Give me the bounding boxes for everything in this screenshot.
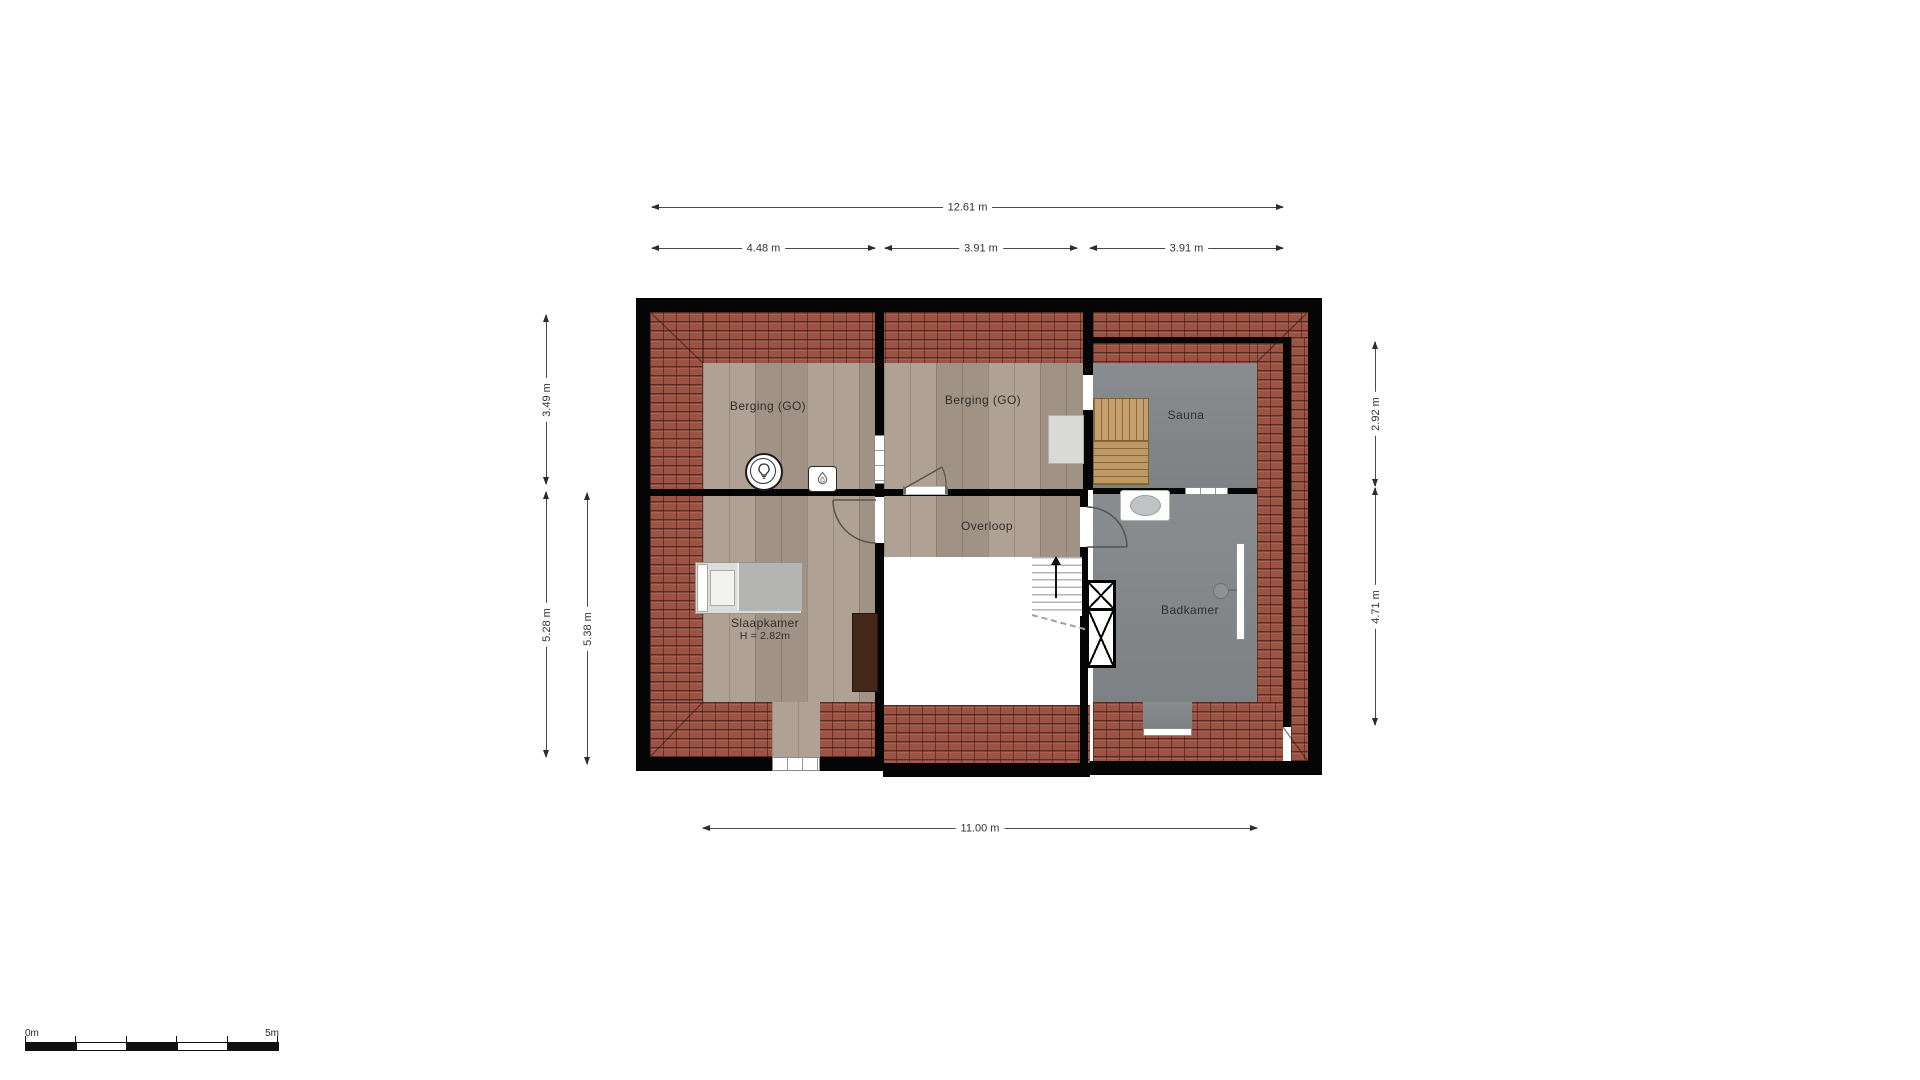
room-label-slaapkamer: Slaapkamer H = 2.82m	[731, 616, 799, 642]
dimension-left-bottom-inner: 5.38 m	[587, 493, 588, 764]
dimension-right-top: 2.92 m	[1375, 342, 1376, 486]
scale-start-label: 0m	[25, 1028, 39, 1039]
wall-outer-right	[1308, 298, 1322, 775]
floor-badkamer	[1093, 494, 1257, 702]
scale-segment	[76, 1043, 127, 1050]
dormer-window-badkamer	[1143, 728, 1192, 736]
duct-shaft-large	[1086, 608, 1116, 668]
wall-outer-bottom-left-b	[820, 757, 883, 771]
bed	[695, 562, 802, 614]
interior-window-bergingen	[874, 435, 885, 484]
dimension-right-bottom: 4.71 m	[1375, 488, 1376, 725]
room-label-overloop: Overloop	[961, 519, 1013, 533]
heater-box	[808, 466, 837, 492]
roof-tiles-top-band	[703, 312, 1083, 363]
roof-tiles-right-outer-band	[1291, 337, 1308, 761]
stair-treads	[1032, 557, 1082, 616]
roof-tiles-sauna-upper-strip	[1093, 343, 1257, 363]
room-label-badkamer: Badkamer	[1161, 603, 1219, 617]
stair-arrow-stem	[1055, 564, 1057, 598]
dimension-top-segment-1: 4.48 m	[652, 248, 875, 249]
cabinet	[1048, 415, 1084, 464]
sauna-bench-upper	[1093, 398, 1149, 442]
wall-sauna-bottom	[1093, 488, 1257, 494]
scale-bar: 0m 5m	[25, 1028, 279, 1054]
wall-outer-top	[636, 298, 1322, 312]
wall-sauna-top	[1093, 337, 1291, 343]
sauna-bench-lower	[1093, 440, 1149, 485]
mechanical-unit-icon	[745, 453, 783, 491]
dimension-left-bottom-outer: 5.28 m	[546, 492, 547, 757]
roof-tiles-right-inner-band	[1257, 343, 1283, 727]
duct-shaft-small	[1086, 580, 1116, 611]
scale-segment	[26, 1043, 76, 1050]
roof-tiles-left-band	[650, 312, 703, 757]
bed-pillow	[710, 570, 735, 606]
door-opening-badkamer	[1080, 507, 1088, 547]
wall-inner-right-vertical	[1283, 337, 1291, 727]
scale-segment	[177, 1043, 228, 1050]
flame-icon	[816, 471, 829, 487]
door-sill-overloop-berging	[903, 486, 948, 495]
roof-tiles-bottom-middle-band	[883, 705, 1090, 763]
dormer-window-slaapkamer	[772, 757, 820, 771]
room-label-berging-middle: Berging (GO)	[945, 393, 1021, 407]
wall-outer-bottom-middle	[883, 763, 1090, 777]
floor-badkamer-dormer	[1143, 702, 1192, 728]
room-label-berging-left: Berging (GO)	[730, 399, 806, 413]
scale-segment	[127, 1043, 177, 1050]
dimension-top-segment-3: 3.91 m	[1090, 248, 1283, 249]
bed-blanket	[737, 563, 802, 611]
room-height-note: H = 2.82m	[731, 630, 799, 642]
wall-outer-bottom-right	[1090, 761, 1322, 775]
dimension-bottom-width: 11.00 m	[703, 828, 1257, 829]
floor-plan-canvas: Berging (GO) Berging (GO) Sauna Overloop…	[0, 0, 1920, 1080]
room-label-sauna: Sauna	[1168, 408, 1205, 422]
floor-berging-left	[703, 363, 875, 489]
scale-segment	[228, 1043, 278, 1050]
door-opening-slaapkamer	[875, 497, 884, 543]
roof-tiles-bottom-left-band	[650, 702, 883, 757]
dresser	[852, 613, 878, 692]
bed-headboard	[697, 564, 708, 612]
door-opening-sauna	[1083, 375, 1093, 410]
floor-slaapkamer-dormer	[772, 702, 820, 757]
shower-head	[1213, 583, 1229, 599]
dimension-top-segment-2: 3.91 m	[885, 248, 1077, 249]
light-bulb-icon	[755, 462, 773, 482]
roof-tiles-right-top-strip	[1093, 312, 1308, 337]
scale-bar-segments	[25, 1042, 279, 1051]
shower-screen	[1236, 543, 1245, 640]
wall-outer-left	[636, 298, 650, 771]
wall-outer-bottom-left-a	[636, 757, 772, 771]
interior-window-sauna-badkamer	[1185, 487, 1228, 495]
sink-basin	[1130, 495, 1161, 516]
dimension-left-top: 3.49 m	[546, 315, 547, 484]
sink	[1120, 490, 1170, 521]
dimension-overall-width: 12.61 m	[652, 207, 1283, 208]
